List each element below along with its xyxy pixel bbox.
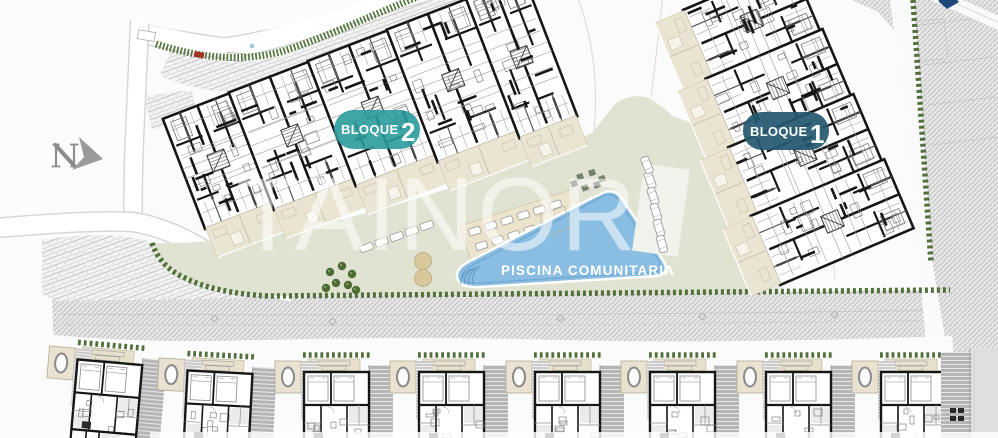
svg-text:BLOQUE: BLOQUE [750,124,807,139]
svg-text:TAINOR: TAINOR [236,157,639,273]
svg-text:1: 1 [810,119,824,149]
svg-text:BLOQUE: BLOQUE [341,122,398,137]
svg-text:2: 2 [401,117,415,147]
